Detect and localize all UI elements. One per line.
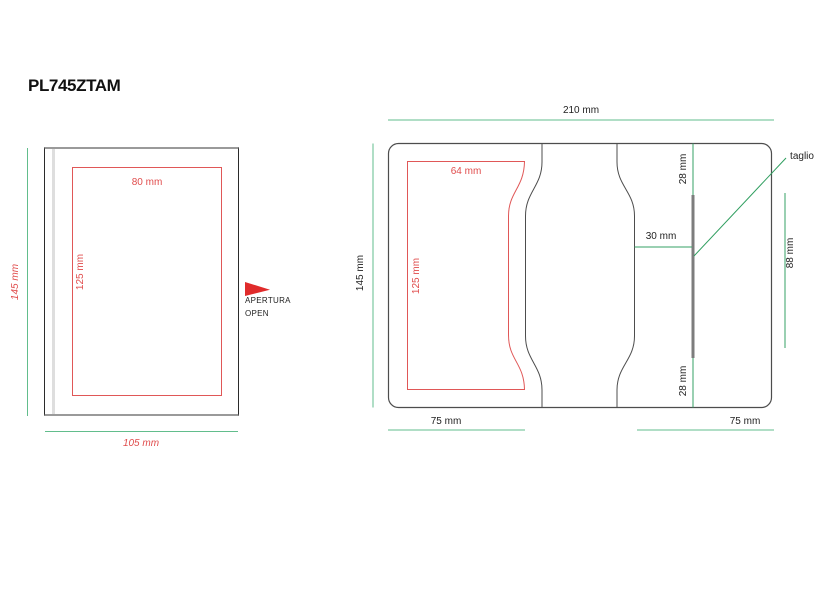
cut-bottom-offset-label: 28 mm (679, 366, 689, 397)
closed-height-dim-label: 145 mm (11, 264, 21, 300)
taglio-label: taglio (790, 152, 814, 162)
closed-width-dim-label: 105 mm (123, 439, 159, 449)
open-width-dim-label: 210 mm (563, 106, 599, 116)
closed-print-area (72, 167, 222, 396)
open-print-height-label: 125 mm (412, 258, 422, 294)
closed-width-dimension-line (45, 431, 238, 432)
closed-print-height-label: 125 mm (76, 254, 86, 290)
open-print-area (408, 162, 525, 390)
product-code-title: PL745ZTAM (28, 76, 120, 96)
cut-top-offset-label: 28 mm (679, 154, 689, 185)
closed-print-width-label: 80 mm (132, 178, 163, 188)
spine-line (52, 149, 55, 414)
apertura-arrow-icon (245, 282, 270, 296)
cut-length-label: 88 mm (786, 238, 796, 269)
left-panel-dim-label: 75 mm (431, 417, 462, 427)
fold-curve-right (617, 144, 635, 408)
open-label: OPEN (245, 309, 269, 318)
cut-inset-label: 30 mm (646, 232, 677, 242)
open-height-dim-label: 145 mm (356, 255, 366, 291)
apertura-label: APERTURA (245, 296, 291, 305)
fold-curve-left (526, 144, 543, 408)
open-cover-outline (389, 144, 772, 408)
right-panel-dim-label: 75 mm (730, 417, 761, 427)
taglio-leader-line (694, 158, 786, 256)
open-print-width-label: 64 mm (451, 167, 482, 177)
closed-height-dimension-line (27, 148, 28, 416)
